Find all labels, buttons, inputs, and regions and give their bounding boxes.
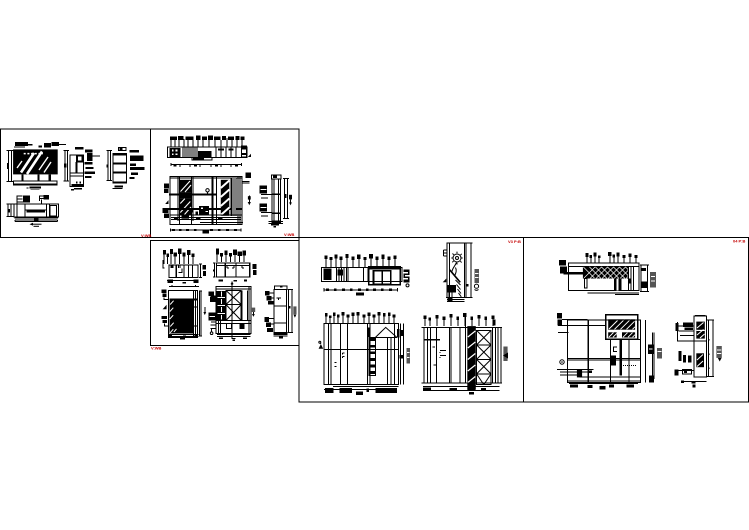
svg-text:V3 P:B: V3 P:B	[508, 239, 521, 244]
svg-text:V:WB: V:WB	[284, 232, 295, 237]
svg-text:V:WB: V:WB	[151, 346, 162, 351]
svg-text:04 P:B: 04 P:B	[733, 239, 746, 244]
svg-text:V:WB: V:WB	[141, 233, 152, 238]
